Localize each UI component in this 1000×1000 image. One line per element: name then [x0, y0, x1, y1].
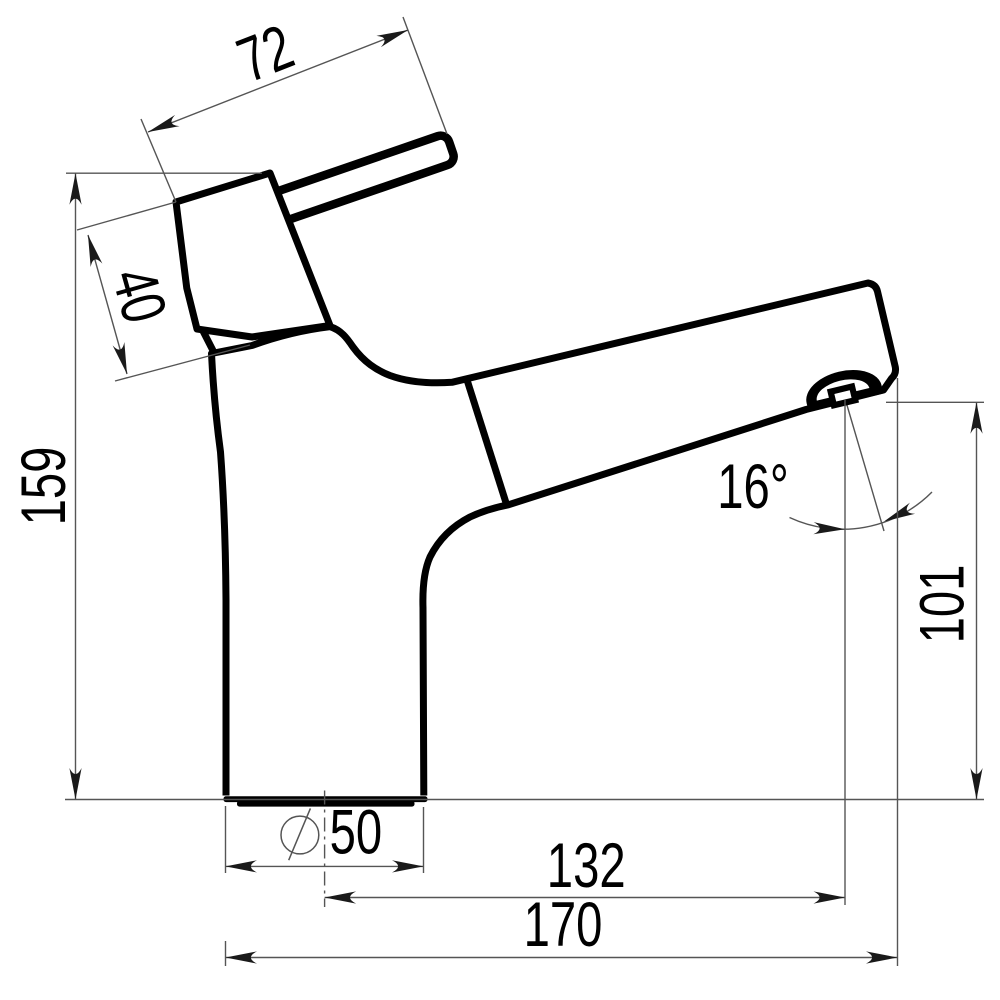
svg-text:72: 72 [228, 11, 303, 95]
svg-text:50: 50 [330, 797, 383, 867]
svg-text:159: 159 [8, 447, 78, 526]
svg-text:40: 40 [99, 261, 181, 331]
svg-text:170: 170 [524, 889, 603, 959]
svg-text:101: 101 [907, 565, 977, 644]
svg-text:16°: 16° [717, 451, 788, 521]
